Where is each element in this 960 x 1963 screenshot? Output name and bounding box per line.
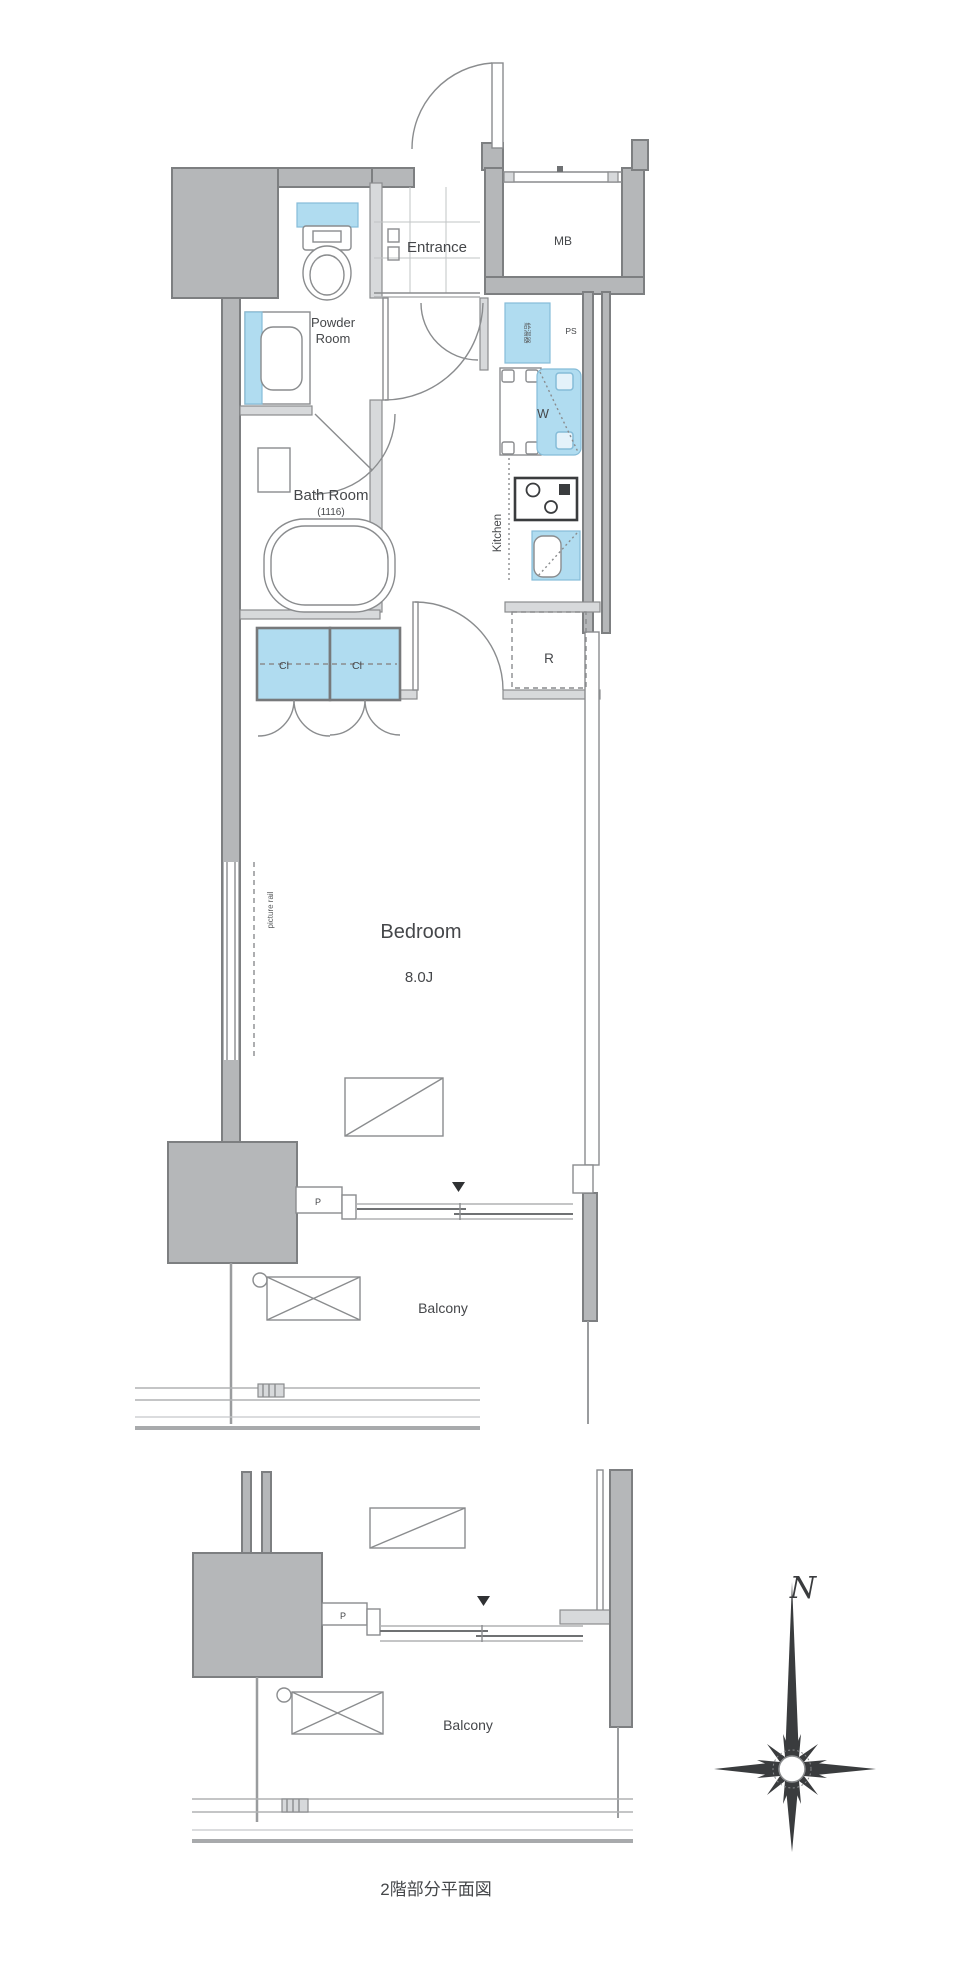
main-floor-plan: MB Entrance 給湯器 PS bbox=[135, 63, 648, 1428]
closet-left-label: Cl bbox=[279, 660, 289, 672]
compass-north-label: N bbox=[789, 1571, 818, 1606]
bath-counter bbox=[258, 448, 290, 492]
wall-right-bar bbox=[610, 1470, 632, 1727]
kitchen-label: Kitchen bbox=[492, 514, 504, 552]
pipe-shaft-label: PS bbox=[565, 326, 577, 336]
left-wall-window bbox=[224, 862, 238, 1060]
floor-plan-page: MB Entrance 給湯器 PS bbox=[0, 0, 960, 1963]
refrigerator-outline bbox=[512, 612, 586, 688]
entry-direction-marker bbox=[477, 1596, 490, 1606]
refrigerator-space: R bbox=[512, 612, 586, 688]
water-heater-label: 給湯器 bbox=[523, 323, 532, 344]
washer-label: W bbox=[537, 407, 549, 421]
wall-balcony-right-bar bbox=[583, 1193, 597, 1321]
compass-rose: N bbox=[714, 1571, 876, 1852]
room-meter-box: MB bbox=[503, 166, 622, 248]
balcony-label-2f: Balcony bbox=[443, 1717, 493, 1733]
wash-basin bbox=[261, 327, 302, 390]
balcony-1f: Balcony bbox=[135, 1263, 588, 1428]
pipe-space-label: P bbox=[315, 1197, 321, 1207]
kitchen-area: Kitchen bbox=[492, 458, 580, 580]
powder-room-label-2: Room bbox=[316, 331, 351, 346]
bedroom-door-arc bbox=[413, 602, 503, 690]
wall-hall-ps bbox=[480, 298, 488, 370]
structural-walls bbox=[168, 140, 648, 1321]
closet-right-label: Cl bbox=[352, 660, 362, 672]
closet-left-box bbox=[257, 628, 330, 700]
wall-mb-bottom bbox=[485, 277, 644, 294]
bath-room-label: Bath Room bbox=[293, 487, 368, 504]
balcony-label: Balcony bbox=[418, 1300, 468, 1316]
vanity-sink-icon bbox=[245, 312, 262, 404]
wall-mb-right bbox=[622, 168, 644, 294]
picture-rail-label: picture rail bbox=[266, 891, 275, 928]
wall-right-inner bbox=[583, 292, 593, 633]
wall-stub bbox=[242, 1472, 251, 1555]
powder-room-label-1: Powder bbox=[311, 315, 356, 330]
step-box bbox=[342, 1195, 356, 1219]
entrance-label: Entrance bbox=[407, 239, 467, 256]
entrance-door-arc bbox=[412, 63, 503, 149]
refrigerator-label: R bbox=[544, 651, 554, 666]
compass-center bbox=[779, 1756, 805, 1782]
wall-block-top-left bbox=[172, 168, 278, 298]
second-floor-partial-plan: P Balcony 2階部分平面図 bbox=[192, 1470, 633, 1899]
window-return-box bbox=[573, 1165, 593, 1193]
compass-north-spike bbox=[785, 1582, 799, 1760]
meter-box-label: MB bbox=[554, 234, 572, 248]
hall-door-arcs bbox=[383, 298, 483, 400]
balcony-hatch-mark bbox=[258, 1384, 284, 1397]
wall-bath-top bbox=[240, 406, 312, 415]
wall-mb-left bbox=[485, 168, 503, 294]
room-bedroom: picture rail Bedroom 8.0J bbox=[254, 862, 462, 1136]
shoe-box-mark bbox=[388, 229, 399, 242]
pipe-space-label-2f: P bbox=[340, 1611, 346, 1621]
wall-window-end bbox=[560, 1610, 613, 1624]
wall-powder-entrance bbox=[370, 183, 382, 298]
wall-mb-stub bbox=[632, 140, 648, 170]
wall-right-outer bbox=[602, 292, 610, 633]
wall-right-thin bbox=[597, 1470, 603, 1612]
drain-icon bbox=[253, 1273, 267, 1287]
closets: Cl Cl bbox=[257, 628, 400, 736]
drain-icon bbox=[277, 1688, 291, 1702]
pipe-shaft-area: 給湯器 PS bbox=[505, 303, 577, 363]
wall-bedroom-right bbox=[585, 632, 599, 1165]
wall-block-bottom-left bbox=[168, 1142, 297, 1263]
toilet-shelf bbox=[297, 203, 358, 227]
wall-block bbox=[193, 1553, 322, 1677]
entry-direction-marker bbox=[452, 1182, 465, 1192]
balcony-hatch-mark bbox=[282, 1799, 308, 1812]
bath-door-leaf bbox=[315, 414, 372, 470]
wall-stub bbox=[262, 1472, 271, 1555]
step-box bbox=[367, 1609, 380, 1635]
closet-door-arcs bbox=[258, 700, 400, 736]
wall-kitchen-end bbox=[505, 602, 600, 612]
bedroom-label: Bedroom bbox=[380, 921, 461, 943]
wall-powder-top bbox=[278, 168, 374, 187]
balcony-window-wall: P bbox=[296, 1182, 573, 1220]
plan-caption: 2階部分平面図 bbox=[380, 1880, 491, 1899]
washer-area: W bbox=[500, 368, 581, 455]
bedroom-size-label: 8.0J bbox=[405, 969, 433, 986]
floor-plan-drawing: MB Entrance 給湯器 PS bbox=[0, 0, 960, 1963]
bath-room-size: (1116) bbox=[317, 507, 344, 518]
